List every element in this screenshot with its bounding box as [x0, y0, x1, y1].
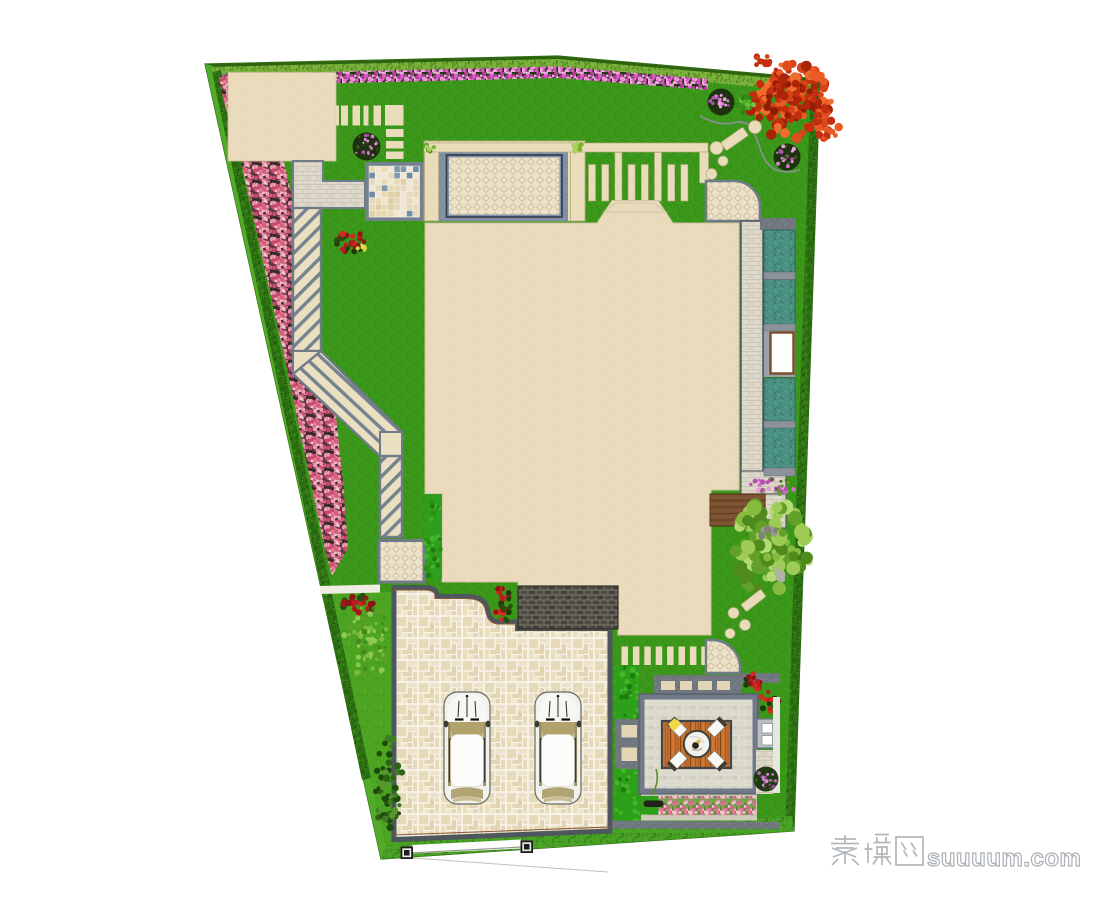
svg-text:suuuum.com: suuuum.com [927, 845, 1081, 872]
